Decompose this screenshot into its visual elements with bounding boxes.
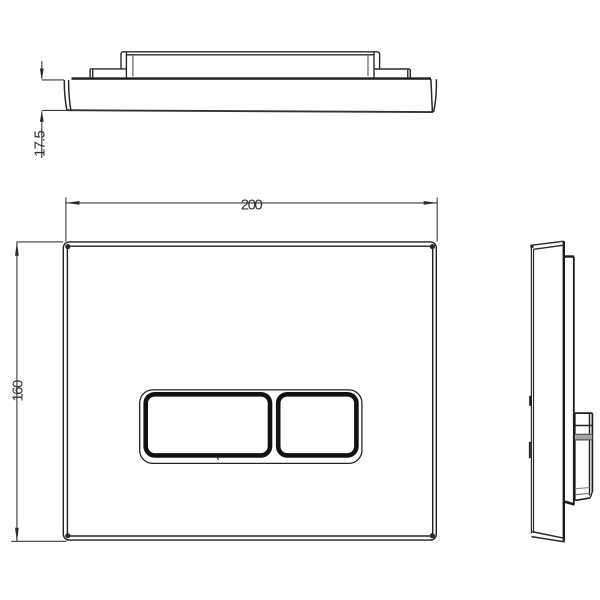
- svg-text:200: 200: [241, 196, 263, 213]
- svg-text:17.5: 17.5: [32, 131, 49, 157]
- svg-text:160: 160: [9, 380, 26, 402]
